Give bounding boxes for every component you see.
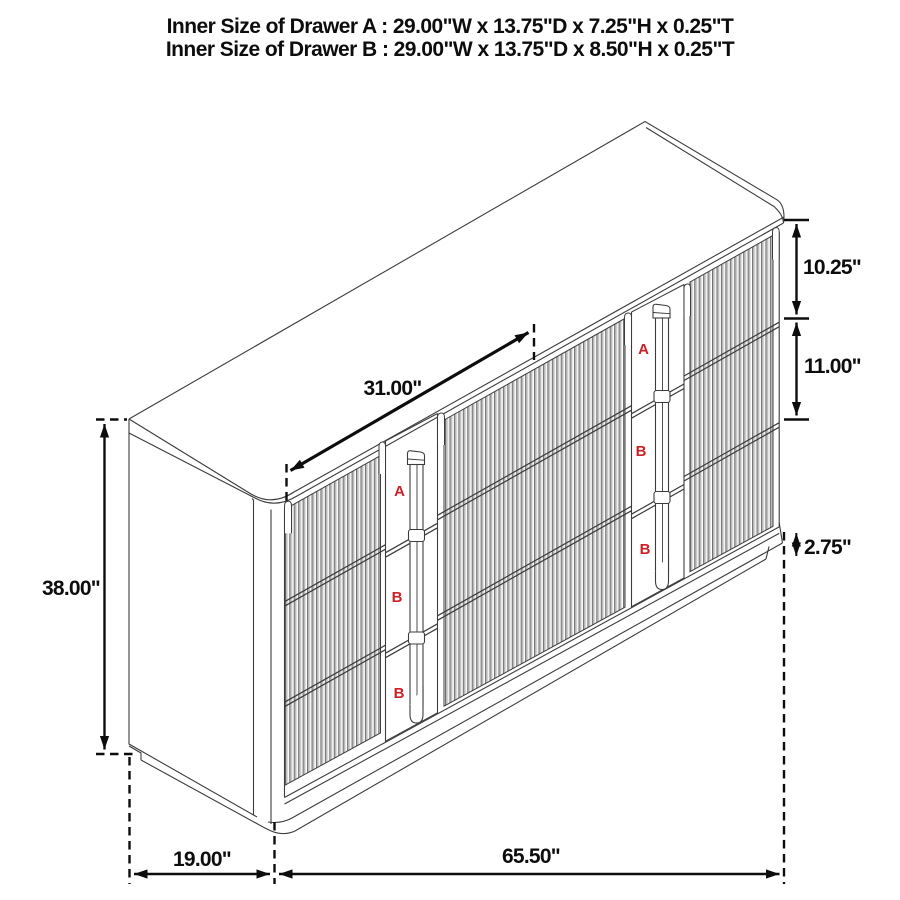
- svg-text:A: A: [638, 341, 649, 358]
- svg-text:A: A: [394, 483, 405, 500]
- svg-text:65.50": 65.50": [502, 845, 560, 868]
- svg-text:19.00": 19.00": [173, 848, 231, 871]
- svg-text:38.00": 38.00": [42, 577, 100, 600]
- svg-text:10.25": 10.25": [803, 256, 861, 279]
- svg-text:B: B: [636, 443, 647, 460]
- svg-text:11.00": 11.00": [804, 355, 861, 378]
- svg-text:B: B: [394, 685, 405, 702]
- svg-text:B: B: [392, 589, 403, 606]
- svg-text:2.75": 2.75": [804, 536, 851, 559]
- svg-text:31.00": 31.00": [363, 377, 421, 400]
- svg-text:B: B: [640, 541, 651, 558]
